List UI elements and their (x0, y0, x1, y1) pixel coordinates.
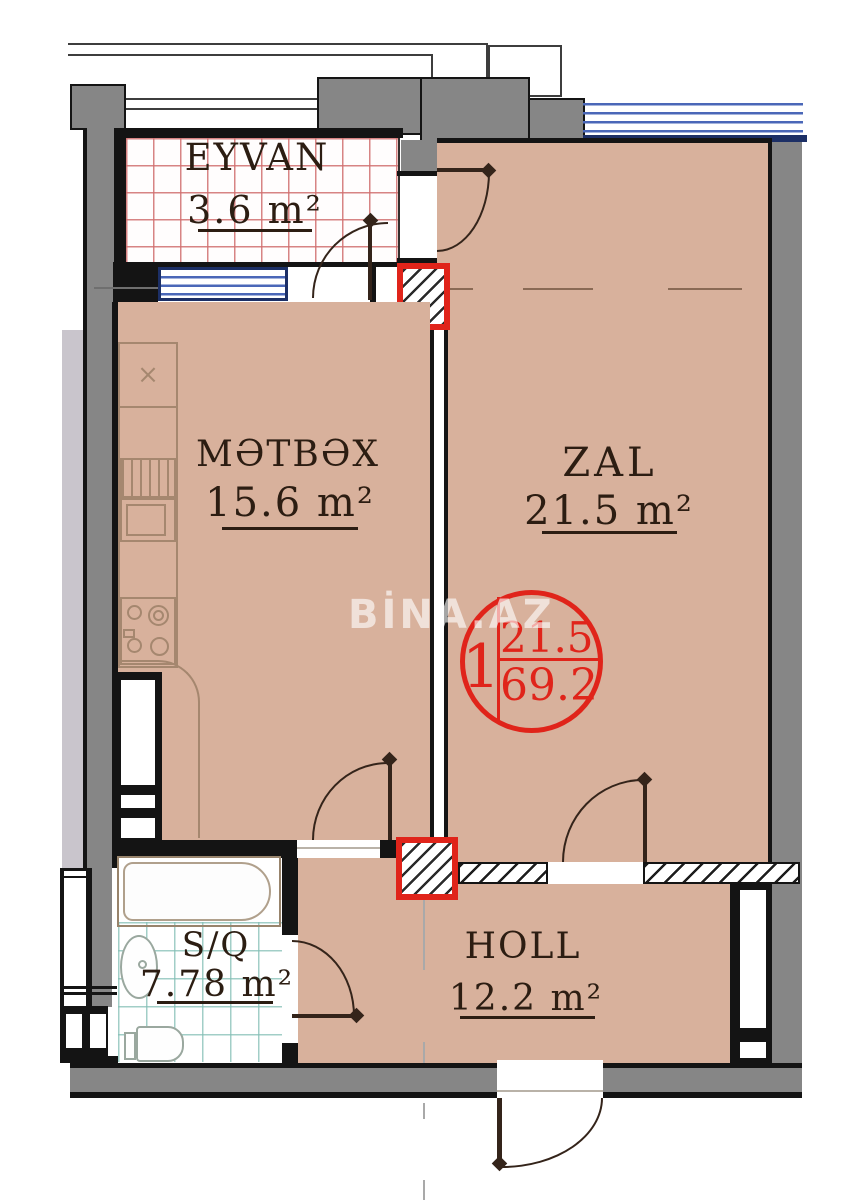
floor-plan: × (0, 0, 868, 1200)
wall-step-line (60, 876, 87, 878)
door-jamb-zal-top (397, 171, 437, 176)
kitchen-sink-mark: × (137, 360, 159, 390)
toilet-bowl (136, 1026, 184, 1062)
room-label-eyvan: EYVAN (152, 136, 362, 179)
beam-dashed-line (668, 288, 742, 290)
stove-burner (127, 638, 142, 653)
door-leaf-sq (292, 1014, 357, 1018)
room-label-metbex: MƏTBƏX (188, 434, 388, 475)
wall-kitchen-zal-core (434, 330, 444, 837)
room-label-zal: ZAL (510, 440, 710, 486)
kitchen-sink: × (118, 342, 178, 408)
duct-niche (121, 818, 155, 838)
stove-burner (153, 610, 164, 621)
slab-outline-line (431, 54, 433, 78)
niche-right (740, 1042, 766, 1058)
wall-top-center-block (317, 77, 422, 135)
door-gap-zal-holl (548, 862, 643, 884)
room-area-holl: 12.2 m² (426, 978, 626, 1019)
centerline-dashed (423, 1103, 425, 1119)
door-leaf-zal-holl (643, 779, 647, 862)
entrance-opening (497, 1060, 603, 1098)
level-tick (94, 287, 158, 289)
duct-niche (90, 1014, 106, 1048)
wall-hatched-holl (643, 862, 800, 884)
wall-kitchen-zal (444, 330, 448, 837)
wall-line (60, 986, 117, 989)
wall-top-center-block (420, 77, 530, 143)
wall-sq-right (282, 858, 298, 935)
door-jamb-kitchen (380, 840, 396, 858)
underline-metbex (222, 527, 358, 530)
wall-right-column (772, 142, 802, 1098)
underline-zal (542, 531, 677, 534)
watermark: BİNA.AZ (348, 592, 555, 638)
door-arc-entrance (502, 1098, 603, 1168)
underline-sq (157, 1001, 273, 1004)
underline-holl (460, 1016, 595, 1019)
door-leaf-eyvan (368, 220, 372, 300)
wall-line (60, 992, 117, 995)
room-label-sq: S/Q (116, 925, 316, 965)
stove-control (123, 629, 135, 638)
beam-dashed-line (450, 288, 473, 290)
kitchen-appliance-box-inner (126, 504, 166, 536)
stove-burner (127, 605, 142, 620)
stamp-total-area: 69.2 (500, 660, 586, 711)
room-area-sq: 7.78 m² (117, 964, 317, 1005)
wall-bottom (70, 1068, 802, 1092)
ventilation-shaft-lower (396, 837, 458, 900)
duct-niche (121, 680, 155, 785)
wall-door-stub (401, 140, 437, 173)
wall-left-light-strip (62, 330, 83, 868)
room-area-zal: 21.5 m² (509, 488, 709, 534)
wall-hatched-holl (458, 862, 548, 884)
slab-outline-line (125, 108, 320, 110)
kitchen-appliance-radiator (120, 458, 176, 498)
room-area-eyvan: 3.6 m² (155, 188, 355, 232)
wall-top-center-block (528, 98, 585, 143)
slab-outline-line (68, 54, 432, 56)
duct-niche (121, 795, 155, 808)
niche-right (740, 890, 766, 1028)
balcony-window (158, 267, 288, 301)
wall-bottom-edge (70, 1092, 802, 1098)
toilet-tank (124, 1032, 136, 1060)
slab-outline-line (125, 98, 320, 100)
wall-joint (60, 1056, 118, 1063)
entrance-threshold (497, 1090, 603, 1092)
wall-step-line (60, 868, 87, 871)
bathtub (123, 862, 271, 921)
stamp-unit-number: 1 (462, 632, 498, 702)
duct-niche (66, 1014, 82, 1048)
door-leaf-kitchen (388, 758, 392, 840)
underline-eyvan (198, 229, 312, 232)
slab-outline-line (68, 43, 488, 45)
door-threshold-kitchen (297, 847, 380, 849)
zal-window (583, 103, 803, 133)
wall-sq-right (282, 1043, 298, 1063)
wall-top-left-block (70, 84, 126, 130)
wall-eyvan-bottom-left (113, 267, 158, 302)
room-area-metbex: 15.6 m² (190, 480, 390, 526)
room-label-holl: HOLL (423, 926, 623, 967)
stove-burner (150, 637, 169, 656)
centerline-dashed (423, 1180, 425, 1200)
beam-dashed-line (523, 288, 593, 290)
